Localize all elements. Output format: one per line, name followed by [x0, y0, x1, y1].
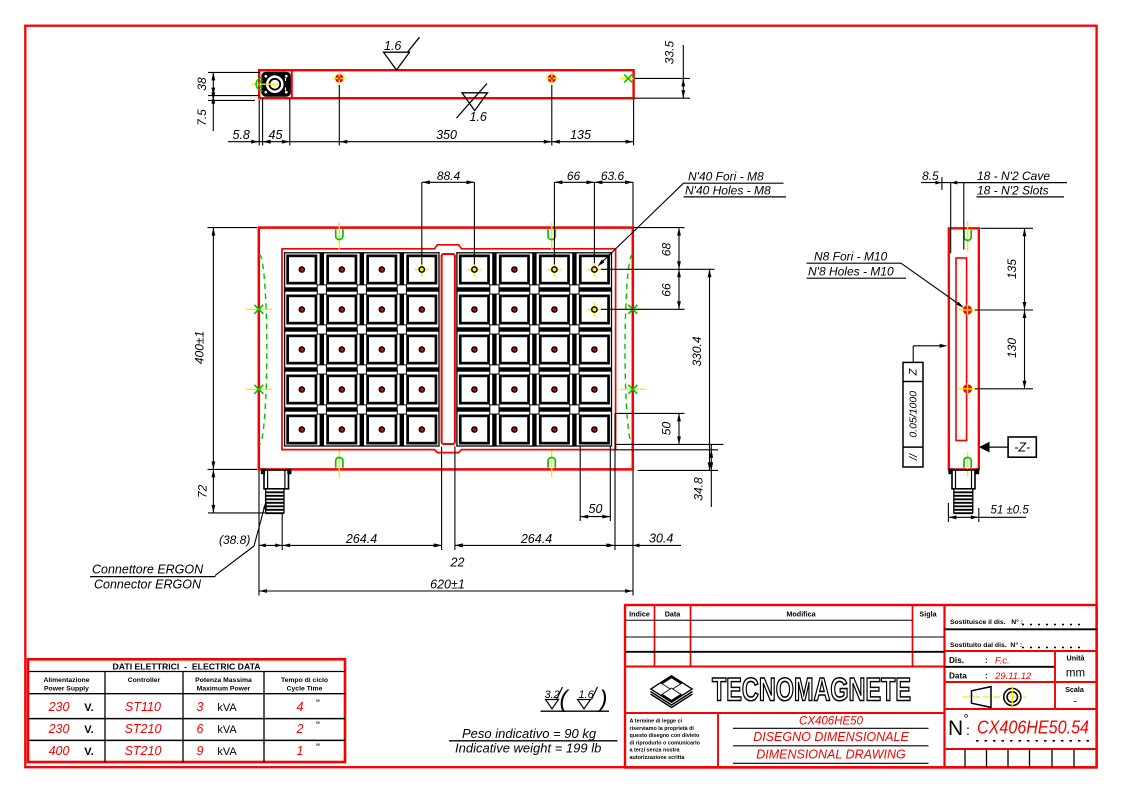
svg-text:(38.8): (38.8): [219, 533, 250, 547]
svg-text:Peso indicativo = 90 kg: Peso indicativo = 90 kg: [462, 726, 597, 741]
svg-text:Potenza Massima: Potenza Massima: [195, 677, 252, 684]
svg-text:V.: V.: [84, 746, 93, 758]
svg-text:-Z-: -Z-: [1014, 440, 1030, 454]
svg-text:Modifica: Modifica: [786, 610, 816, 619]
svg-text:N: N: [948, 717, 963, 740]
svg-text:Connettore ERGON: Connettore ERGON: [92, 563, 204, 577]
svg-text:330.4: 330.4: [690, 336, 704, 366]
svg-text:230: 230: [48, 700, 70, 714]
svg-text:5.8: 5.8: [233, 128, 250, 142]
svg-text:620±1: 620±1: [430, 578, 465, 592]
svg-text:questo disegno con divieto: questo disegno con divieto: [630, 733, 700, 739]
svg-text:ST210: ST210: [125, 722, 162, 736]
svg-text:130: 130: [1005, 338, 1019, 358]
svg-text:4: 4: [297, 700, 304, 714]
svg-text:63.6: 63.6: [601, 169, 625, 183]
svg-text:135: 135: [1005, 259, 1019, 279]
svg-text:33.5: 33.5: [663, 40, 677, 64]
svg-text:mm: mm: [1066, 668, 1085, 680]
svg-text:a terzi senza nostra: a terzi senza nostra: [630, 748, 681, 754]
svg-text:66: 66: [567, 169, 581, 183]
svg-text:ST210: ST210: [125, 744, 162, 758]
svg-text:di riprodurlo o comunicarlo: di riprodurlo o comunicarlo: [630, 740, 701, 746]
svg-text:TECNOMAGNETE: TECNOMAGNETE: [712, 672, 911, 708]
svg-text:264.4: 264.4: [520, 532, 552, 546]
svg-text:3: 3: [197, 700, 204, 714]
svg-text:22: 22: [450, 556, 465, 570]
svg-text:Dis.: Dis.: [949, 656, 964, 665]
svg-text:38: 38: [195, 77, 209, 91]
svg-text:72: 72: [196, 484, 210, 498]
svg-text:Sigla: Sigla: [919, 610, 937, 619]
svg-text:DISEGNO DIMENSIONALE: DISEGNO DIMENSIONALE: [753, 730, 909, 744]
svg-text:V.: V.: [84, 702, 93, 714]
svg-text:Cycle Time: Cycle Time: [287, 686, 323, 693]
svg-text:2: 2: [296, 722, 304, 736]
svg-text:50: 50: [660, 422, 674, 436]
svg-text:50: 50: [589, 502, 603, 516]
svg-text:350: 350: [436, 128, 457, 142]
svg-text:34.8: 34.8: [692, 477, 706, 501]
svg-text:7.5: 7.5: [195, 109, 209, 126]
svg-text:230: 230: [48, 722, 70, 736]
svg-text:": ": [316, 720, 320, 732]
svg-text:Sostituito dal dis. N° :: Sostituito dal dis. N° :: [950, 641, 1022, 649]
svg-text:45: 45: [269, 128, 283, 142]
svg-text:9: 9: [197, 744, 204, 758]
svg-text://: //: [908, 453, 920, 461]
svg-text:": ": [316, 698, 320, 710]
svg-text:Indice: Indice: [629, 610, 650, 619]
svg-text:N'8 Holes - M10: N'8 Holes - M10: [808, 265, 894, 279]
svg-text:kVA: kVA: [217, 746, 237, 758]
svg-text:66: 66: [660, 283, 674, 297]
svg-text:Sostituisce il dis. N° :: Sostituisce il dis. N° :: [950, 618, 1023, 626]
svg-text:6: 6: [197, 722, 204, 736]
svg-text:kVA: kVA: [217, 702, 237, 714]
svg-text:30.4: 30.4: [649, 532, 673, 546]
svg-text:68: 68: [660, 243, 674, 257]
svg-text:Maximum Power: Maximum Power: [197, 686, 251, 693]
svg-text:Indicative weight = 199 lb: Indicative weight = 199 lb: [455, 740, 601, 755]
svg-text:Z: Z: [908, 367, 920, 376]
svg-text:400: 400: [49, 744, 70, 758]
svg-text:F.c.: F.c.: [995, 656, 1010, 667]
svg-text:1.6: 1.6: [470, 110, 487, 124]
svg-text:Data: Data: [665, 610, 682, 619]
svg-text:A termine di legge ci: A termine di legge ci: [630, 719, 683, 725]
svg-text:29.11.12: 29.11.12: [994, 671, 1032, 682]
svg-text:1.6: 1.6: [384, 39, 401, 53]
svg-text:ST110: ST110: [125, 700, 161, 714]
svg-text:264.4: 264.4: [345, 532, 377, 546]
svg-text:Tempo di ciclo: Tempo di ciclo: [281, 677, 328, 684]
svg-text:1: 1: [297, 744, 304, 758]
svg-text:Connector ERGON: Connector ERGON: [94, 578, 202, 592]
svg-text:N8 Fori - M10: N8 Fori - M10: [814, 249, 888, 263]
svg-text:N'40 Fori - M8: N'40 Fori - M8: [688, 170, 764, 184]
svg-text:400±1: 400±1: [193, 331, 207, 364]
svg-text:Power Supply: Power Supply: [44, 686, 89, 693]
svg-text:autorizzazione scritta: autorizzazione scritta: [630, 755, 686, 761]
svg-text:88.4: 88.4: [437, 169, 461, 183]
svg-text:Unità: Unità: [1067, 654, 1086, 663]
svg-text:kVA: kVA: [217, 724, 237, 736]
svg-text:-: -: [1073, 693, 1078, 708]
svg-text:": ": [316, 742, 320, 754]
svg-text::: :: [966, 722, 970, 738]
svg-text:18 - N'2 Slots: 18 - N'2 Slots: [977, 183, 1049, 197]
svg-text:51 ±0.5: 51 ±0.5: [991, 505, 1030, 517]
svg-text:N'40 Holes - M8: N'40 Holes - M8: [685, 183, 771, 197]
svg-text:V.: V.: [84, 724, 93, 736]
svg-text:8.5: 8.5: [922, 169, 939, 183]
svg-text:riserviamo la proprietà di: riserviamo la proprietà di: [630, 726, 695, 732]
svg-text:Alimentazione: Alimentazione: [43, 677, 89, 684]
svg-text:18 - N'2 Cave: 18 - N'2 Cave: [977, 169, 1050, 183]
svg-text:Controller: Controller: [128, 677, 161, 684]
svg-text::: :: [985, 656, 988, 665]
svg-text:135: 135: [570, 128, 591, 142]
svg-text:DATI ELETTRICI - ELECTRIC DA: DATI ELETTRICI - ELECTRIC DATA: [113, 661, 261, 671]
svg-text::: :: [985, 672, 988, 681]
svg-text:CX406HE50: CX406HE50: [799, 716, 864, 728]
svg-text:Data: Data: [949, 672, 967, 681]
svg-text:DIMENSIONAL DRAWING: DIMENSIONAL DRAWING: [756, 748, 906, 762]
svg-text:0.05/1000: 0.05/1000: [908, 391, 920, 438]
svg-text:CX406HE50.54: CX406HE50.54: [977, 717, 1089, 738]
